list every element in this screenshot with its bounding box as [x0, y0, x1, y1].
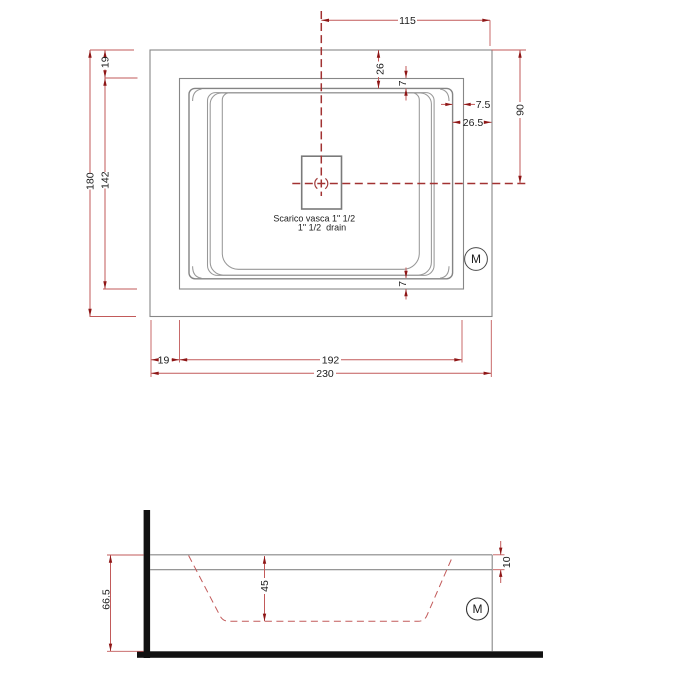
svg-text:26: 26 — [375, 63, 387, 75]
svg-text:1" 1/2 drain: 1" 1/2 drain — [298, 222, 346, 232]
svg-text:26.5: 26.5 — [463, 117, 484, 129]
svg-text:45: 45 — [259, 580, 271, 592]
svg-text:230: 230 — [316, 368, 334, 380]
svg-text:142: 142 — [100, 171, 112, 189]
svg-text:66.5: 66.5 — [101, 589, 113, 610]
svg-text:10: 10 — [501, 556, 513, 568]
svg-text:19: 19 — [158, 354, 170, 366]
svg-text:7.5: 7.5 — [476, 99, 491, 111]
svg-text:7: 7 — [397, 80, 409, 86]
svg-text:19: 19 — [100, 56, 112, 68]
svg-text:115: 115 — [399, 15, 416, 27]
svg-text:90: 90 — [515, 104, 527, 116]
svg-text:192: 192 — [322, 354, 340, 366]
svg-text:M: M — [473, 602, 483, 616]
svg-text:180: 180 — [85, 172, 97, 190]
svg-text:7: 7 — [397, 281, 409, 287]
svg-text:M: M — [471, 252, 481, 266]
